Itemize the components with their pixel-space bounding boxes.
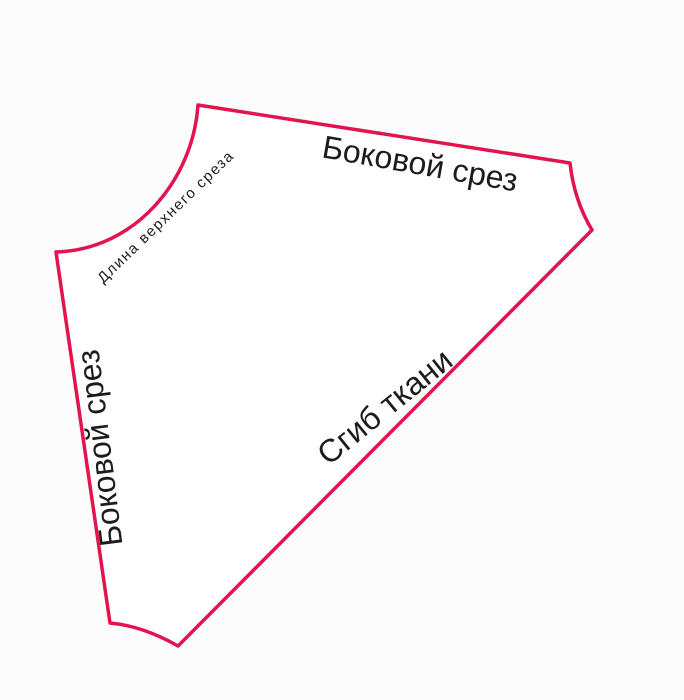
pattern-diagram: Боковой срез Боковой срез Длина верхнего… [0,0,684,700]
